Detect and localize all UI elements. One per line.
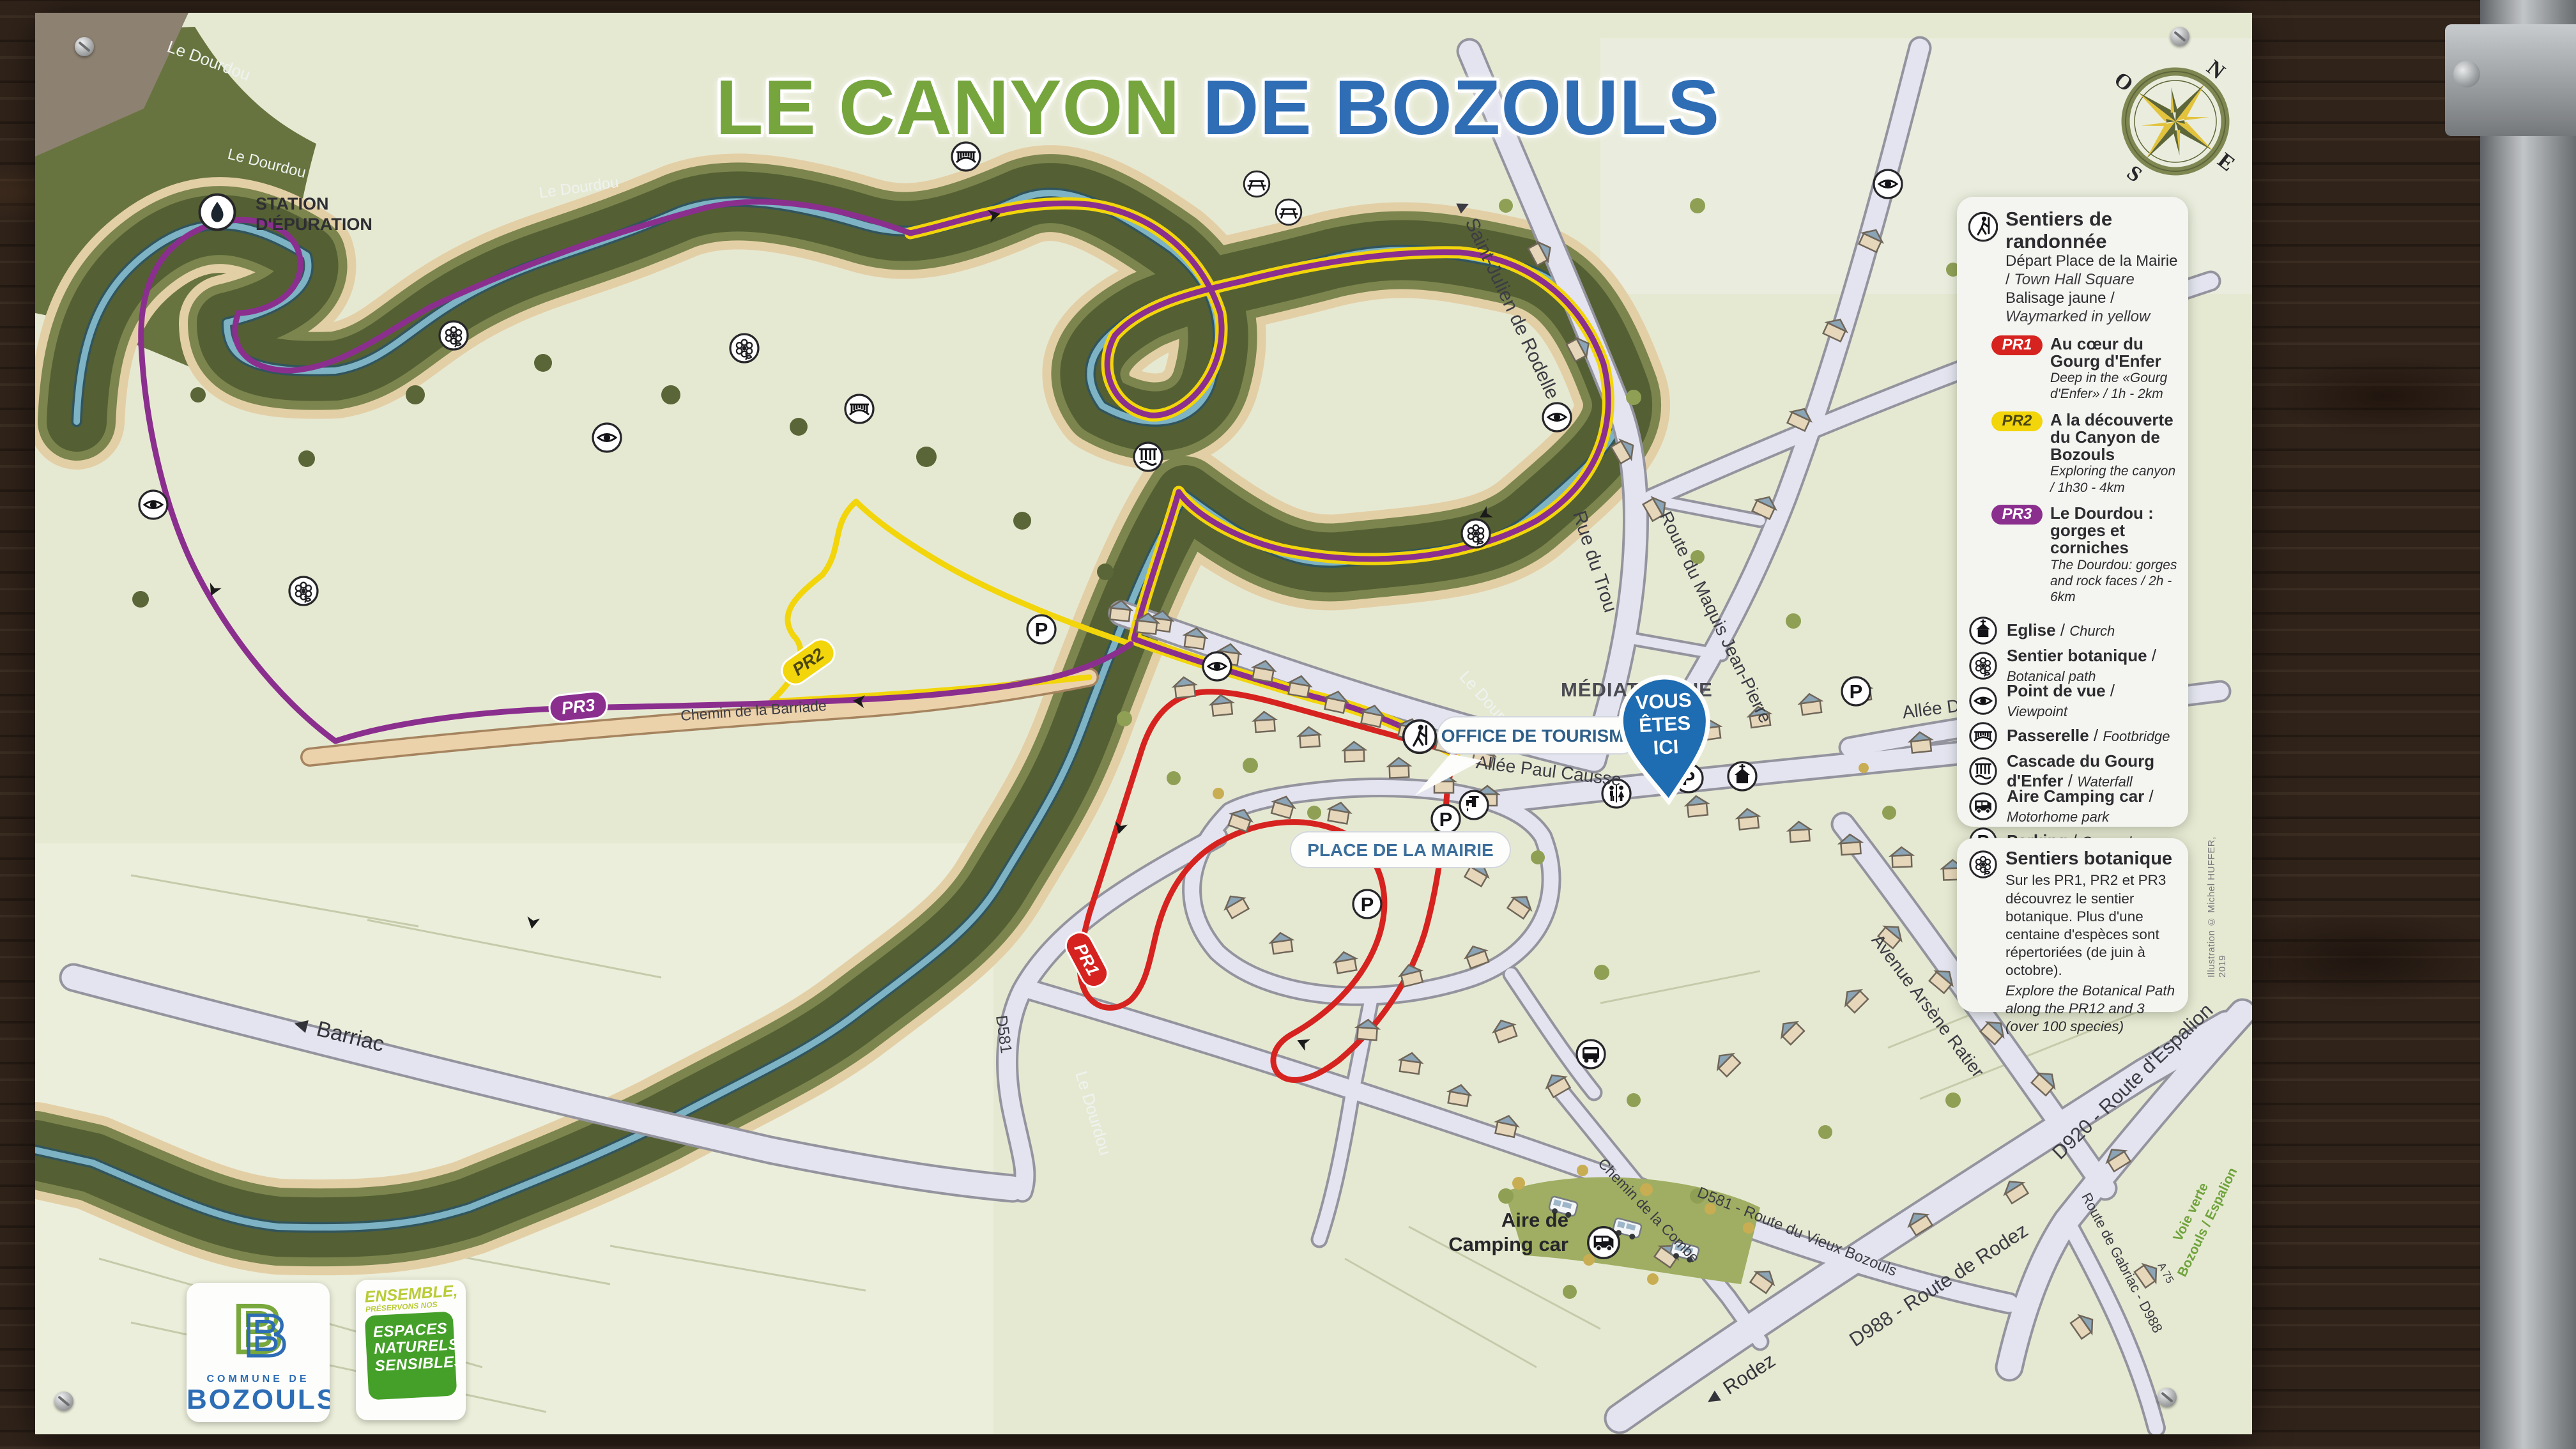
- bozouls-label: BOZOULS: [187, 1385, 330, 1414]
- illustration-credit: Illustration © Michel HUFFER, 2019: [2206, 824, 2220, 977]
- botanical-note-box: Sentiers botanique Sur les PR1, PR2 et P…: [1957, 838, 2188, 1012]
- tree: [1531, 850, 1545, 864]
- svg-text:OFFICE DE TOURISME: OFFICE DE TOURISME: [1441, 726, 1636, 746]
- tree: [1859, 763, 1869, 773]
- tree: [1583, 1254, 1595, 1266]
- botanical-path-icon: [1968, 651, 1998, 680]
- panel-screw: [2158, 1388, 2177, 1407]
- botanical-path-icon: [730, 334, 758, 362]
- botanical-path-icon: [289, 577, 318, 605]
- legend-title: Sentiers de randonnée: [2005, 208, 2178, 252]
- picnic-icon: [1244, 171, 1269, 197]
- ens-tagline: ENSEMBLE, PRÉSERVONS NOS: [364, 1283, 466, 1314]
- mounting-pole: [2480, 0, 2576, 1449]
- bus-icon: [1577, 1040, 1605, 1068]
- legend-subtitle: Départ Place de la Mairie / Town Hall Sq…: [2005, 252, 2178, 289]
- tree: [1167, 771, 1181, 785]
- svg-text:VOUS: VOUS: [1635, 689, 1692, 714]
- picnic-icon: [1276, 199, 1301, 225]
- pr3-badge: PR3: [1991, 505, 2043, 525]
- tree: [1647, 1273, 1659, 1285]
- botanical-path-icon: [440, 321, 468, 349]
- footbridge-icon: [1968, 721, 1998, 751]
- tree: [1512, 1177, 1525, 1190]
- legend-item-botanical: Sentier botanique / Botanical path: [1968, 648, 2178, 683]
- viewpoint-icon: [1968, 686, 1998, 716]
- waterfall-icon: [1968, 756, 1998, 786]
- legend-item-motorhome: Aire Camping car / Motorhome park: [1968, 788, 2178, 824]
- botanical-path-icon: [1462, 519, 1490, 548]
- pole-bolt: [2453, 61, 2480, 88]
- tree: [1627, 1093, 1641, 1107]
- tree: [1498, 1188, 1514, 1204]
- tree: [1307, 806, 1321, 820]
- trailhead-hiker-icon: [1404, 721, 1436, 753]
- tree: [1945, 1092, 1961, 1108]
- station-epuration-label: D'ÉPURATION: [256, 214, 372, 234]
- viewpoint-icon: [593, 424, 621, 452]
- viewpoint-icon: [1874, 170, 1902, 198]
- water-point-icon: [1460, 791, 1488, 819]
- tree: [132, 591, 149, 608]
- bozouls-b-mark: B B: [187, 1292, 330, 1367]
- tree: [406, 385, 425, 404]
- legend-item-footbridge: Passerelle / Footbridge: [1968, 718, 2178, 753]
- hiker-icon: [1968, 208, 1998, 245]
- motorhome-icon: [1588, 1227, 1619, 1258]
- pr2-badge: PR2: [1991, 411, 2043, 431]
- campsite-label: Camping car: [1448, 1233, 1568, 1255]
- parking-icon: [1027, 615, 1055, 643]
- tree: [916, 447, 937, 467]
- svg-text:ICI: ICI: [1653, 735, 1679, 759]
- botanical-text-fr: Sur les PR1, PR2 et PR3 découvrez le sen…: [2005, 871, 2179, 979]
- svg-text:ÊTES: ÊTES: [1638, 711, 1691, 737]
- pr1-badge: PR1: [1991, 335, 2043, 355]
- tree: [1743, 1222, 1754, 1234]
- tree: [661, 385, 680, 404]
- legend-subtitle: Balisage jaune / Waymarked in yellow: [2005, 289, 2178, 326]
- viewpoint-icon: [139, 491, 167, 519]
- tree: [1818, 1125, 1832, 1139]
- footbridge-icon: [845, 395, 873, 423]
- svg-text:PLACE DE LA MAIRIE: PLACE DE LA MAIRIE: [1307, 840, 1493, 860]
- legend-item-waterfall: Cascade du Gourg d'Enfer / Waterfall: [1968, 753, 2178, 788]
- title-part-blue: DE BOZOULS: [1180, 64, 1720, 151]
- botanical-text-en: Explore the Botanical Path along the PR1…: [2005, 982, 2179, 1036]
- tree: [1577, 1165, 1588, 1176]
- tree: [1213, 788, 1224, 799]
- tree: [1594, 965, 1609, 980]
- campsite-label: Aire de: [1501, 1209, 1568, 1231]
- tree: [1786, 613, 1801, 629]
- parking-icon: [1353, 890, 1381, 918]
- botanical-title: Sentiers botanique: [2005, 848, 2179, 869]
- tree: [1243, 758, 1258, 773]
- place-mairie-bubble: PLACE DE LA MAIRIE: [1291, 832, 1510, 868]
- legend-item-viewpoint: Point de vue / Viewpoint: [1968, 683, 2178, 718]
- title-part-green: LE CANYON: [716, 64, 1180, 151]
- tree: [790, 418, 808, 436]
- motorhome-icon: [1968, 792, 1998, 821]
- water-treatment-icon: [200, 195, 235, 230]
- tree: [1690, 198, 1705, 213]
- church-icon: [1968, 616, 1998, 645]
- ens-green-box: ESPACES NATURELS SENSIBLES: [365, 1311, 457, 1400]
- panel-screw: [75, 37, 94, 56]
- tree: [534, 354, 552, 372]
- tree: [190, 387, 206, 402]
- church-icon: [1728, 762, 1756, 790]
- legend-box: Sentiers de randonnée Départ Place de la…: [1957, 197, 2188, 827]
- legend-item-church: Eglise / Church: [1968, 613, 2178, 648]
- map-panel: P: [35, 13, 2252, 1434]
- commune-bozouls-logo: B B COMMUNE DE BOZOULS: [187, 1283, 330, 1422]
- botanical-path-icon: [1968, 848, 1998, 880]
- legend-trail-pr2: PR2 A la découverte du Canyon de Bozouls…: [1991, 411, 2178, 496]
- espaces-naturels-sensibles-logo: ENSEMBLE, PRÉSERVONS NOS ESPACES NATUREL…: [356, 1280, 466, 1420]
- parking-icon: [1432, 805, 1460, 833]
- viewpoint-icon: [1203, 652, 1231, 680]
- viewpoint-icon: [1543, 403, 1571, 431]
- tree: [298, 450, 315, 467]
- tree: [1097, 563, 1114, 580]
- waterfall-icon: [1134, 443, 1162, 471]
- tree: [1499, 199, 1513, 213]
- legend-trail-pr1: PR1 Au cœur du Gourg d'EnferDeep in the …: [1991, 335, 2178, 402]
- panel-screw: [2170, 27, 2189, 46]
- tree: [1626, 390, 1641, 405]
- pr3-badge: PR3: [548, 690, 608, 723]
- page-title: LE CANYON DE BOZOULS: [716, 63, 1720, 152]
- legend-trail-pr3: PR3 Le Dourdou : gorges et cornichesThe …: [1991, 505, 2178, 605]
- tree: [1882, 806, 1896, 820]
- tree: [1563, 1285, 1577, 1299]
- canyon-map-illustration: P: [35, 13, 2252, 1434]
- station-epuration-label: STATION: [256, 194, 329, 213]
- panel-screw: [54, 1391, 73, 1411]
- svg-text:PR3: PR3: [560, 695, 595, 717]
- parking-icon: [1842, 677, 1870, 705]
- tree: [1117, 711, 1132, 726]
- tree: [1013, 512, 1031, 530]
